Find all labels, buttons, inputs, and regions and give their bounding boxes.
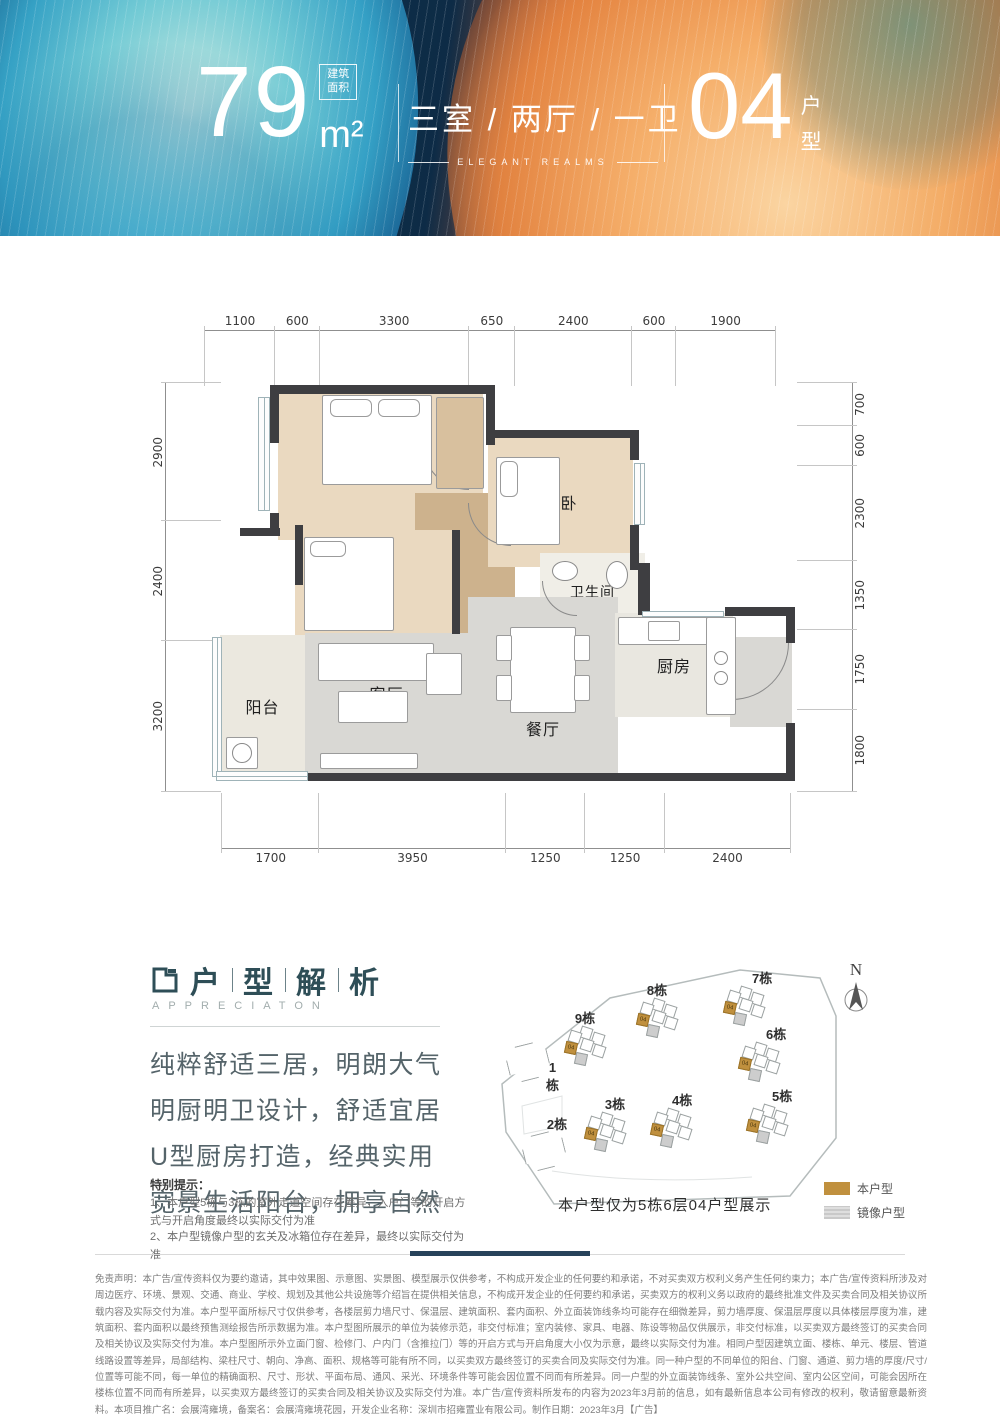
legend-label-mirror-unit: 镜像户型 bbox=[857, 1204, 905, 1221]
layout-title: 三室 / 两厅 / 一卫 bbox=[408, 94, 658, 139]
title-separator bbox=[338, 968, 339, 992]
dims-left: 2900 2400 3200 bbox=[148, 383, 166, 791]
washer-drum bbox=[232, 743, 252, 763]
unit-03-mirror bbox=[594, 1138, 608, 1152]
building-3: 3栋 04 bbox=[584, 1094, 626, 1151]
dim: 1100 bbox=[205, 313, 275, 331]
pillow bbox=[378, 399, 420, 417]
area-badge-line1: 建筑 bbox=[322, 68, 354, 82]
subtitle-dash-right bbox=[617, 162, 658, 163]
legend-swatch-this-unit bbox=[824, 1182, 850, 1195]
building-9: 9栋 04 bbox=[564, 1008, 606, 1065]
building-shape: 04 bbox=[650, 1109, 692, 1147]
area-unit: m² bbox=[319, 114, 363, 157]
kitchen-counter-side bbox=[706, 617, 736, 715]
wall bbox=[270, 385, 279, 443]
dim: 2900 bbox=[148, 383, 166, 521]
compass-icon bbox=[841, 980, 871, 1016]
balcony-window-left bbox=[212, 637, 222, 777]
dim: 3200 bbox=[148, 641, 166, 791]
toilet bbox=[606, 561, 628, 589]
dim: 1700 bbox=[222, 848, 319, 866]
dim: 1800 bbox=[852, 710, 870, 791]
sofa bbox=[318, 643, 434, 681]
dim: 600 bbox=[632, 313, 676, 331]
chair bbox=[574, 675, 590, 701]
dim: 3300 bbox=[320, 313, 469, 331]
title-separator bbox=[285, 968, 286, 992]
unit-03-mirror bbox=[660, 1134, 674, 1148]
north-arrow: N bbox=[838, 960, 874, 1021]
tv-bench bbox=[320, 753, 418, 769]
area-block: 79 建筑 面积 m² bbox=[196, 58, 364, 157]
wall bbox=[725, 607, 795, 616]
dims-right: 700 600 2300 1350 1750 1800 bbox=[852, 383, 870, 791]
unit-03-mirror bbox=[748, 1068, 762, 1082]
special-note-1: 1、本户型5栋与3栋的室外走道空间存在差异，入户门等的开启方式与开启角度最终以实… bbox=[150, 1194, 470, 1230]
wall bbox=[305, 773, 795, 781]
building-shape: 04 bbox=[746, 1105, 788, 1143]
dim: 2400 bbox=[665, 848, 790, 866]
pillow bbox=[310, 541, 346, 557]
dim: 1250 bbox=[506, 848, 586, 866]
coffee-table bbox=[338, 691, 408, 723]
building-shape: 04 bbox=[738, 1043, 780, 1081]
disclaimer-text: 免责声明：本广告/宣传资料仅为要约邀请，其中效果图、示意图、实景图、模型展示仅供… bbox=[95, 1272, 927, 1414]
dim: 2400 bbox=[148, 521, 166, 641]
unit-char-1: 户 bbox=[801, 90, 822, 120]
building-shape: 04 bbox=[584, 1113, 626, 1151]
building-8: 8栋 04 bbox=[636, 980, 678, 1037]
chair bbox=[574, 635, 590, 661]
dim: 650 bbox=[469, 313, 515, 331]
analysis-divider bbox=[150, 1026, 440, 1027]
dining-table bbox=[510, 627, 576, 713]
layout-subtitle: ELEGANT REALMS bbox=[457, 157, 608, 167]
building-shape: 04 bbox=[564, 1027, 606, 1065]
room-label-balcony: 阳台 bbox=[245, 694, 279, 718]
bedroom-window-right bbox=[634, 463, 645, 525]
pillow bbox=[330, 399, 372, 417]
building-shape bbox=[519, 1128, 568, 1173]
dim: 600 bbox=[275, 313, 319, 331]
dim: 1250 bbox=[585, 848, 665, 866]
chair bbox=[496, 635, 512, 661]
wall bbox=[240, 528, 280, 536]
layout-title-block: 三室 / 两厅 / 一卫 ELEGANT REALMS bbox=[408, 94, 658, 167]
dim: 600 bbox=[852, 426, 870, 466]
balcony-window-bottom bbox=[216, 771, 308, 781]
floorplan-drawing: 主卧 次卧 次卧 卫生间 阳台 客厅 餐厅 厨房 bbox=[210, 385, 795, 790]
wall bbox=[638, 563, 650, 615]
kitchen-sink bbox=[648, 621, 680, 641]
unit-03-mirror bbox=[646, 1024, 660, 1038]
area-badge-line2: 面积 bbox=[322, 82, 354, 96]
building-7: 7栋 04 bbox=[716, 968, 772, 1025]
analysis-line: U型厨房打造，经典实用 bbox=[150, 1134, 460, 1180]
analysis-line: 纯粹舒适三居，明朗大气 bbox=[150, 1042, 460, 1088]
unit-char-2: 型 bbox=[801, 126, 822, 156]
dims-bottom: 1700 3950 1250 1250 2400 bbox=[222, 848, 790, 866]
dim: 700 bbox=[852, 383, 870, 426]
wall bbox=[630, 430, 639, 460]
room-label-dining: 餐厅 bbox=[526, 716, 560, 740]
special-note-2: 2、本户型镜像户型的玄关及冰箱位存在差异，最终以实际交付为准 bbox=[150, 1228, 470, 1264]
unit-block: 04 户 型 bbox=[688, 64, 822, 156]
pillow bbox=[500, 461, 518, 497]
wall bbox=[786, 607, 795, 643]
building-4: 4栋 04 bbox=[650, 1090, 692, 1147]
dim: 1350 bbox=[852, 561, 870, 630]
wardrobe-master bbox=[436, 397, 484, 489]
title-separator bbox=[232, 968, 233, 992]
unit-03-mirror bbox=[756, 1130, 770, 1144]
building-1: 1栋 bbox=[502, 1044, 554, 1080]
stove-burner bbox=[714, 651, 728, 665]
sitemap-legend: 本户型 镜像户型 bbox=[824, 1180, 905, 1228]
legend-swatch-mirror-unit bbox=[824, 1206, 850, 1219]
wall bbox=[486, 430, 638, 438]
title-char: 型 bbox=[243, 958, 275, 1002]
dim: 3950 bbox=[319, 848, 505, 866]
special-note-title: 特别提示： bbox=[150, 1176, 210, 1193]
dim: 2300 bbox=[852, 466, 870, 561]
building-5: 5栋 04 bbox=[742, 1086, 792, 1143]
wall bbox=[270, 385, 492, 394]
floorplan-poster: 79 建筑 面积 m² 三室 / 两厅 / 一卫 ELEGANT REALMS … bbox=[0, 0, 1000, 1414]
legend-label-this-unit: 本户型 bbox=[857, 1180, 893, 1197]
room-label-kitchen: 厨房 bbox=[657, 653, 691, 677]
analysis-title: 户 型 解 析 bbox=[150, 958, 381, 1002]
dim: 1900 bbox=[676, 313, 775, 331]
area-badge: 建筑 面积 bbox=[319, 64, 357, 100]
dim: 2400 bbox=[515, 313, 632, 331]
armchair bbox=[426, 653, 462, 695]
sitemap-caption: 本户型仅为5栋6层04户型展示 bbox=[558, 1194, 771, 1215]
title-char: 析 bbox=[349, 958, 381, 1002]
title-char: 户 bbox=[190, 958, 222, 1002]
unit-03-mirror bbox=[733, 1012, 747, 1026]
building-shape: 04 bbox=[723, 987, 765, 1025]
area-value: 79 bbox=[196, 58, 311, 157]
building-2: 2栋 bbox=[518, 1114, 570, 1169]
wall bbox=[786, 723, 795, 779]
analysis-line: 明厨明卫设计，舒适宜居 bbox=[150, 1088, 460, 1134]
building-6: 6栋 04 bbox=[732, 1024, 786, 1081]
wall bbox=[452, 530, 460, 634]
header-banner: 79 建筑 面积 m² 三室 / 两厅 / 一卫 ELEGANT REALMS … bbox=[0, 0, 1000, 236]
title-char: 解 bbox=[296, 958, 328, 1002]
bay-window bbox=[258, 397, 270, 511]
wall bbox=[295, 525, 303, 585]
building-shape: 04 bbox=[636, 999, 678, 1037]
site-map: 1栋 2栋 3栋 04 4栋 04 bbox=[480, 952, 930, 1252]
chair bbox=[496, 675, 512, 701]
footer-divider-accent bbox=[410, 1251, 590, 1256]
dims-top: 1100 600 3300 650 2400 600 1900 bbox=[205, 313, 775, 331]
stove-burner bbox=[714, 671, 728, 685]
analysis-subtitle: APPRECIATON bbox=[152, 1000, 329, 1012]
bath-sink bbox=[552, 561, 578, 581]
floorplan-icon bbox=[150, 965, 180, 995]
unit-03-mirror bbox=[574, 1052, 588, 1066]
dim: 1750 bbox=[852, 630, 870, 710]
unit-number: 04 bbox=[688, 64, 793, 156]
header-divider-left bbox=[398, 84, 399, 162]
subtitle-dash-left bbox=[408, 162, 449, 163]
north-label: N bbox=[838, 960, 874, 980]
